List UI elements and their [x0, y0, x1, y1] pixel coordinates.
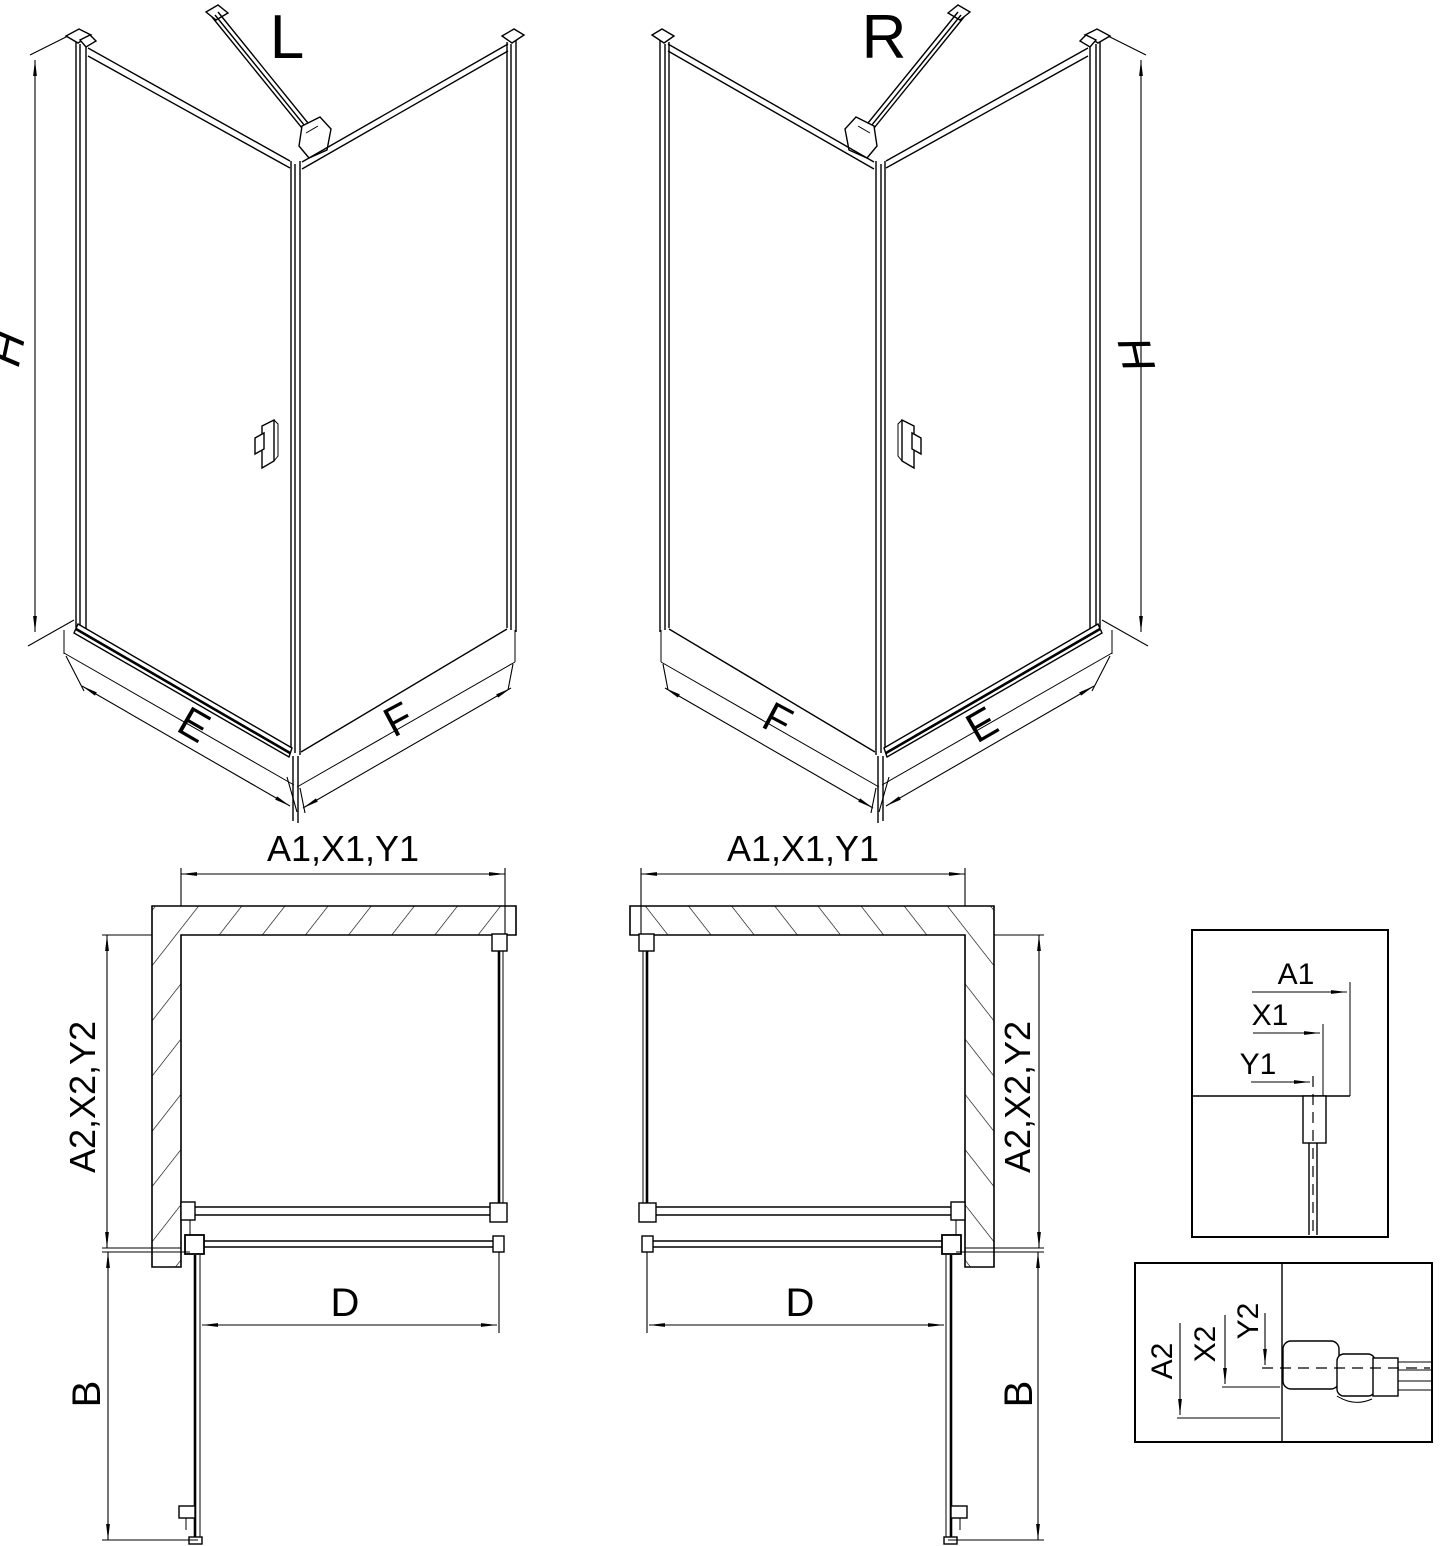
detail-y2-label: Y2: [1232, 1303, 1265, 1340]
plan-view-left: [102, 868, 516, 1544]
detail-a2-label: A2: [1146, 1343, 1179, 1380]
plan-top-dim-label-left: A1,X1,Y1: [267, 828, 419, 869]
detail-x1-label: X1: [1252, 999, 1289, 1032]
door-width-label-left: D: [331, 1281, 360, 1325]
height-dim-label-left: H: [0, 326, 35, 370]
variant-label-right: R: [862, 3, 907, 72]
plan-view-right: [630, 868, 1044, 1544]
plan-top-dim-label-right: A1,X1,Y1: [727, 828, 879, 869]
profile-clamp-section: [1337, 1354, 1375, 1396]
labels: L R H H E F F E A1,X1,Y1 A1,X1,Y1 A2,X2,…: [0, 3, 1314, 1407]
wall-bracket-section: [1303, 1096, 1326, 1143]
technical-drawing-page: L R H H E F F E A1,X1,Y1 A1,X1,Y1 A2,X2,…: [0, 0, 1446, 1546]
detail-x2-label: X2: [1189, 1326, 1222, 1363]
detail-y1-label: Y1: [1240, 1048, 1277, 1081]
door-width-label-right: D: [786, 1281, 815, 1325]
variant-label-left: L: [270, 3, 304, 72]
swing-dim-label-left: B: [65, 1381, 109, 1408]
detail-a1-label: A1: [1278, 958, 1315, 991]
iso-view-left: [28, 5, 524, 823]
profile-gasket-section: [1373, 1358, 1398, 1396]
plan-side-dim-label-right: A2,X2,Y2: [997, 1021, 1038, 1173]
swing-dim-label-right: B: [997, 1381, 1041, 1408]
height-dim-label-right: H: [1107, 333, 1165, 377]
glass-panes-section: [1398, 1362, 1432, 1390]
shower-enclosure-diagram: L R H H E F F E A1,X1,Y1 A1,X1,Y1 A2,X2,…: [0, 0, 1446, 1546]
iso-view-right: [652, 5, 1148, 823]
plan-side-dim-label-left: A2,X2,Y2: [62, 1021, 103, 1173]
profile-body-section: [1283, 1341, 1339, 1389]
detail-box-bottom-profile: [1135, 1263, 1432, 1442]
profile-hook-curve: [1337, 1396, 1372, 1402]
